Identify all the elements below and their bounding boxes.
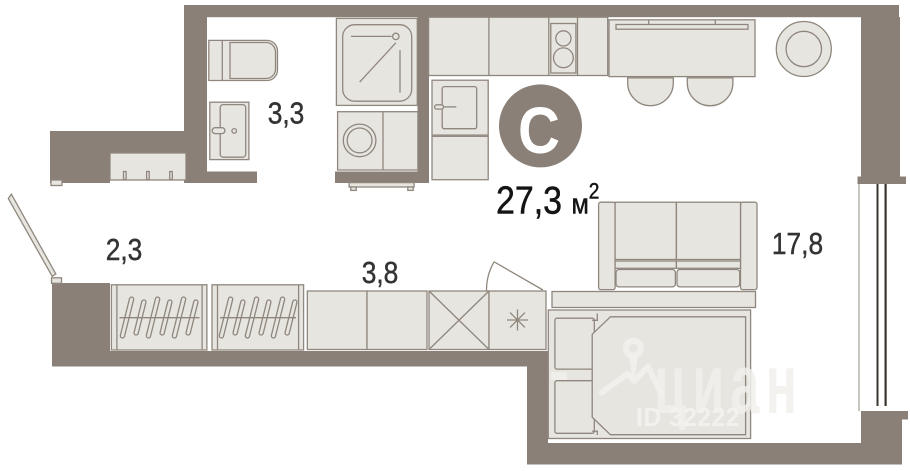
svg-text:ID 32222: ID 32222 xyxy=(636,403,740,432)
svg-text:17,8: 17,8 xyxy=(772,227,823,261)
svg-text:2,3: 2,3 xyxy=(106,233,143,267)
svg-text:3,8: 3,8 xyxy=(362,256,399,290)
svg-text:С: С xyxy=(518,95,560,168)
svg-text:3,3: 3,3 xyxy=(268,97,305,131)
